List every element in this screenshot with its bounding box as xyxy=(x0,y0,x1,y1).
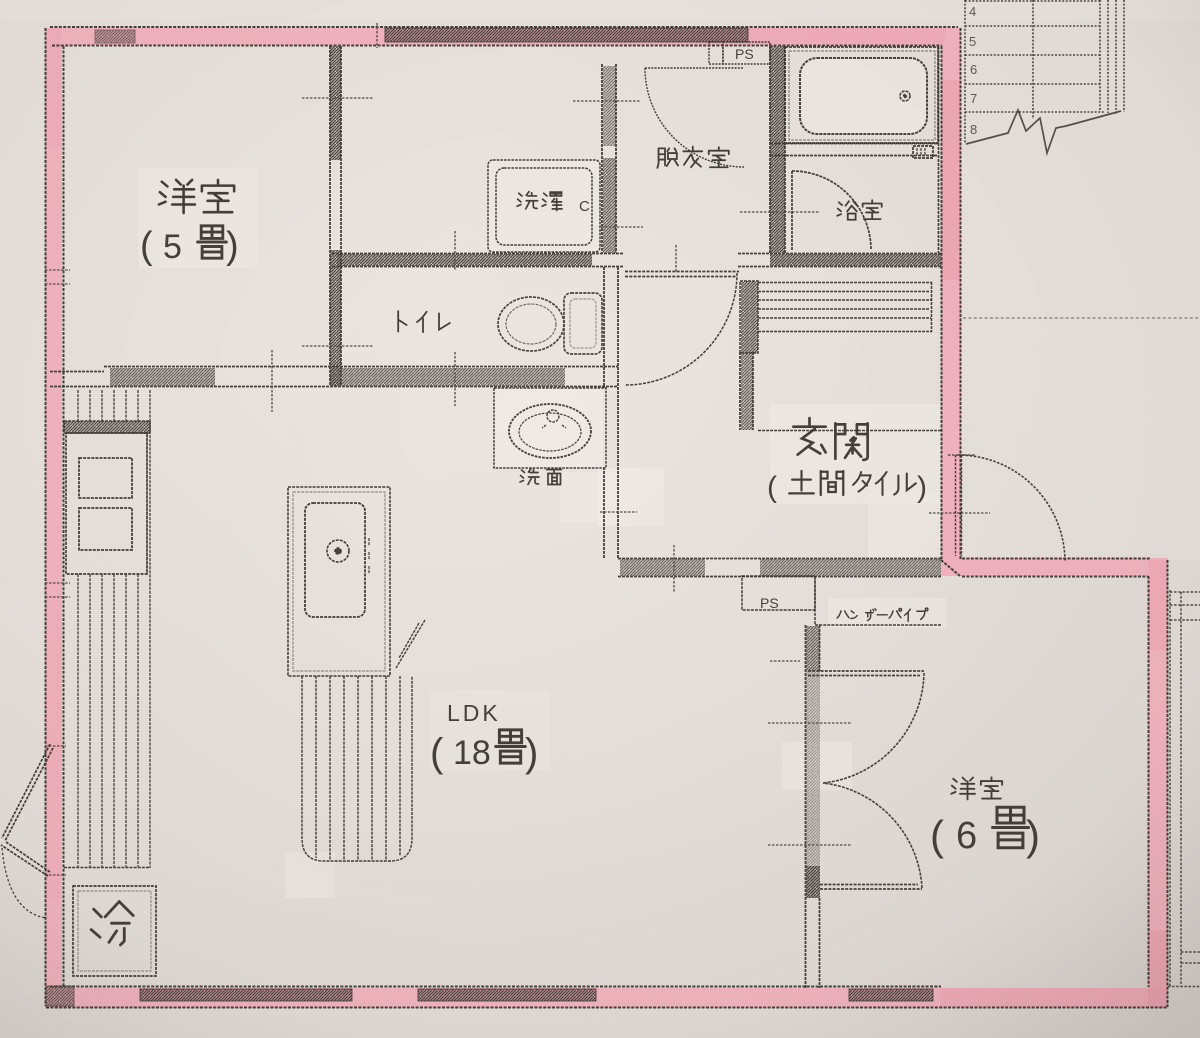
svg-text:6: 6 xyxy=(970,62,977,77)
svg-text:): ) xyxy=(917,471,927,504)
svg-text:LDK: LDK xyxy=(447,700,501,726)
svg-text:5: 5 xyxy=(969,34,976,49)
svg-text:C: C xyxy=(579,198,590,215)
svg-text:(: ( xyxy=(767,471,777,504)
svg-text:4: 4 xyxy=(969,4,976,19)
svg-text:8: 8 xyxy=(970,122,977,137)
svg-text:PS: PS xyxy=(735,46,754,62)
svg-text:PS: PS xyxy=(760,595,779,611)
svg-text:18: 18 xyxy=(453,734,491,772)
svg-text:6: 6 xyxy=(956,815,977,857)
svg-text:5: 5 xyxy=(163,228,182,266)
svg-text:(: ( xyxy=(930,812,944,859)
svg-text:): ) xyxy=(226,225,239,267)
svg-text:7: 7 xyxy=(970,91,977,106)
svg-text:): ) xyxy=(525,731,538,775)
svg-text:(: ( xyxy=(430,731,444,775)
svg-text:(: ( xyxy=(140,225,153,267)
svg-text:): ) xyxy=(1026,812,1040,859)
